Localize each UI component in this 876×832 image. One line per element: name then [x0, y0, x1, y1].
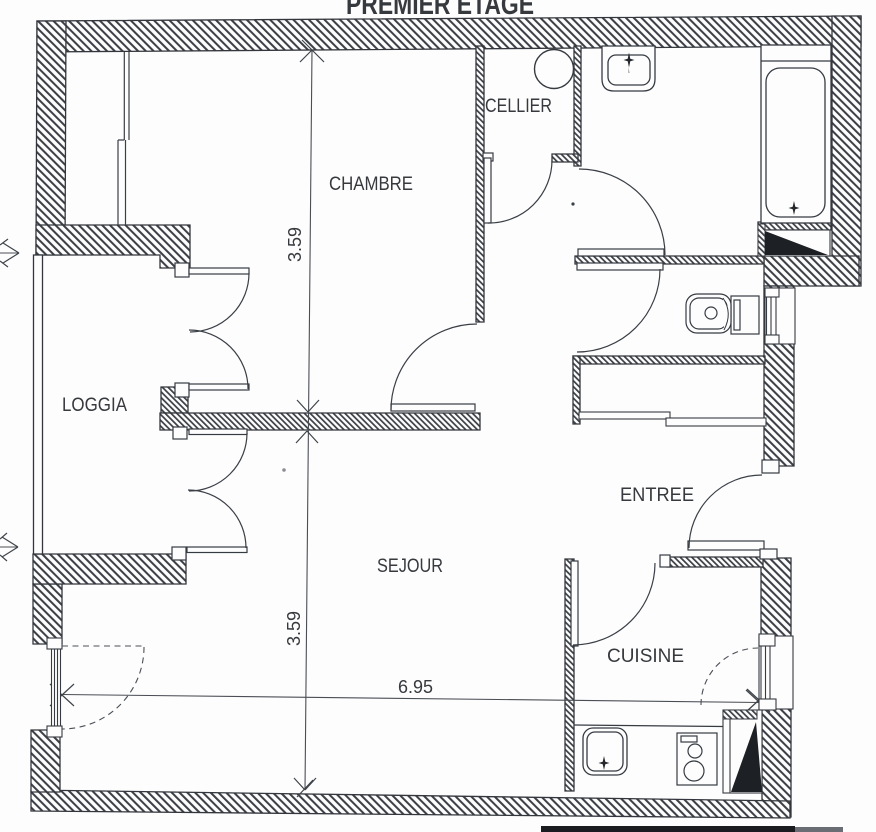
svg-text:6.95: 6.95	[398, 677, 433, 697]
svg-text:3.59: 3.59	[284, 611, 304, 646]
svg-text:CUISINE: CUISINE	[607, 646, 684, 667]
svg-text:LOGGIA: LOGGIA	[62, 395, 127, 416]
svg-text:CELLIER: CELLIER	[485, 96, 552, 117]
svg-text:SEJOUR: SEJOUR	[377, 556, 443, 577]
svg-text:CHAMBRE: CHAMBRE	[329, 174, 413, 195]
svg-text:ENTREE: ENTREE	[620, 485, 694, 506]
svg-text:3.59: 3.59	[285, 227, 305, 262]
